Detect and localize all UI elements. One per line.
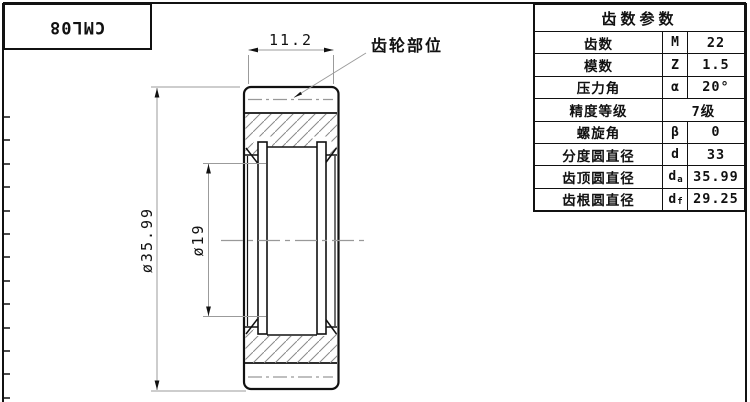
table-row: 螺旋角 β 0	[535, 122, 744, 144]
dim-width-value: 11.2	[269, 31, 313, 49]
table-row: 齿数 M 22	[535, 32, 744, 54]
dim-bore-diameter-value: ø19	[189, 223, 207, 256]
table-row: 齿顶圆直径 da 35.99	[535, 166, 744, 188]
title-block: CML08	[3, 3, 152, 50]
dimension-width: 11.2	[249, 31, 334, 84]
gear-parameters-table: 齿数参数 齿数 M 22 模数 Z 1.5 压力角 α 20° 精度等级 7级 …	[533, 3, 746, 212]
table-row: 压力角 α 20°	[535, 77, 744, 99]
table-title: 齿数参数	[535, 5, 744, 32]
part-code: CML08	[49, 17, 105, 37]
table-row: 精度等级 7级	[535, 99, 744, 121]
table-row: 分度圆直径 d 33	[535, 144, 744, 166]
table-row: 齿根圆直径 df 29.25	[535, 189, 744, 210]
gear-body	[221, 87, 364, 389]
dim-outer-diameter-value: ø35.99	[138, 207, 156, 273]
leader-label: 齿轮部位	[371, 36, 443, 55]
table-row: 模数 Z 1.5	[535, 54, 744, 76]
cad-drawing-sheet: 11.2 ø35.99 ø19 齿轮部位 CML08 齿数参数 齿	[0, 0, 750, 402]
